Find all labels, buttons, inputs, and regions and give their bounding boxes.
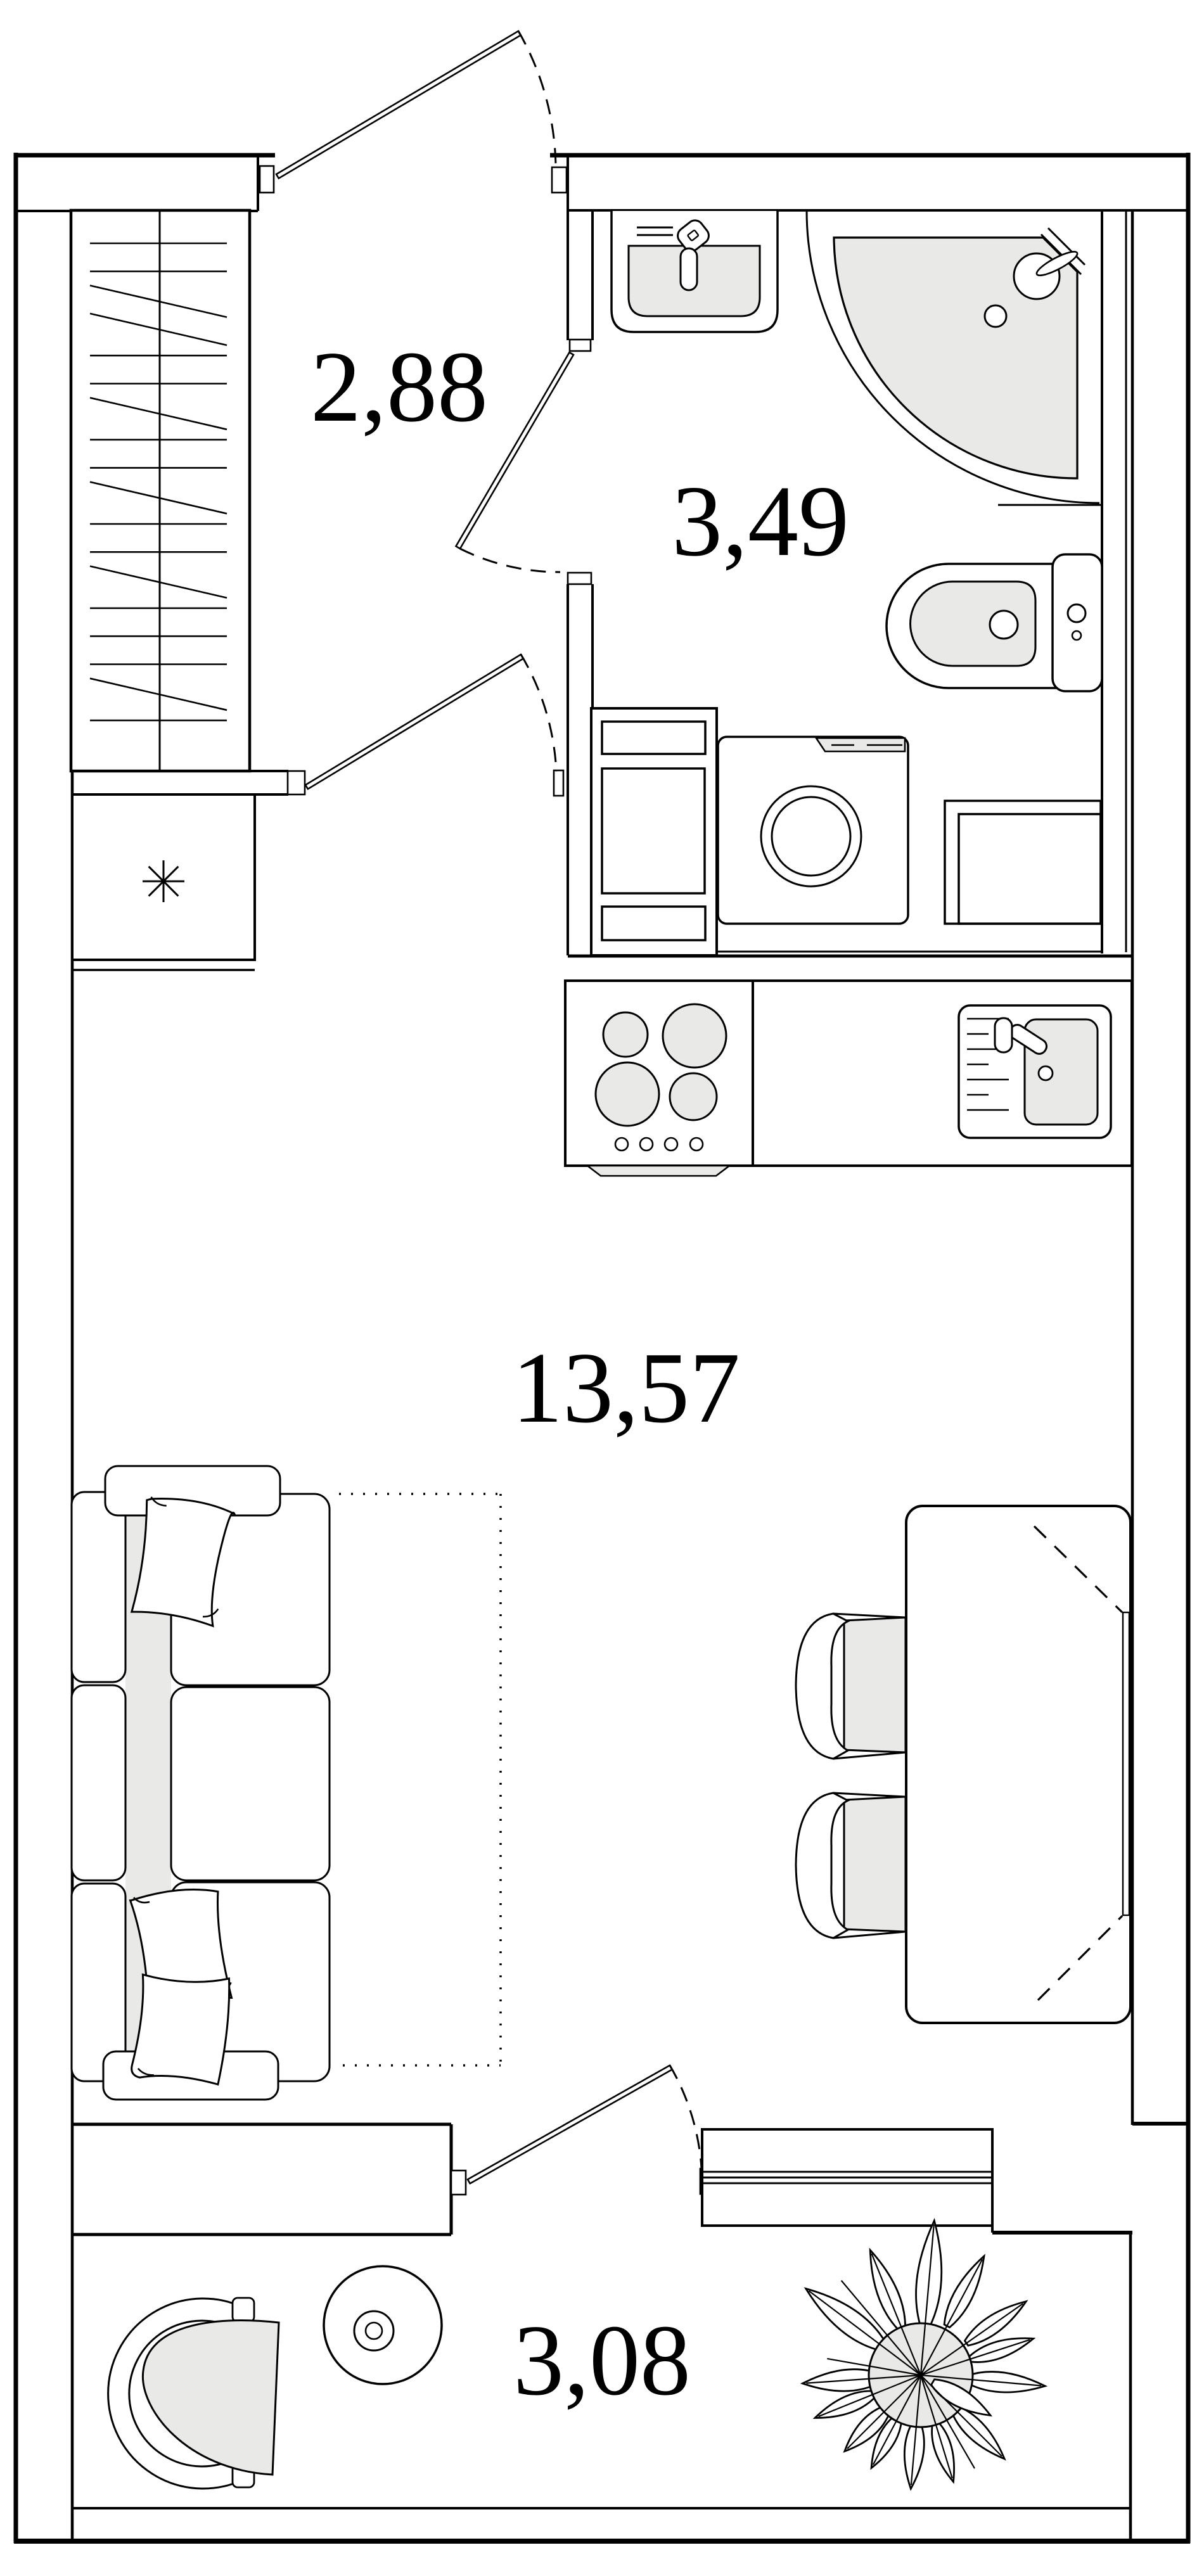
svg-text:3,49: 3,49 (672, 464, 849, 577)
svg-text:3,08: 3,08 (513, 2304, 691, 2416)
svg-text:2,88: 2,88 (311, 330, 488, 443)
svg-text:13,57: 13,57 (512, 1331, 740, 1444)
